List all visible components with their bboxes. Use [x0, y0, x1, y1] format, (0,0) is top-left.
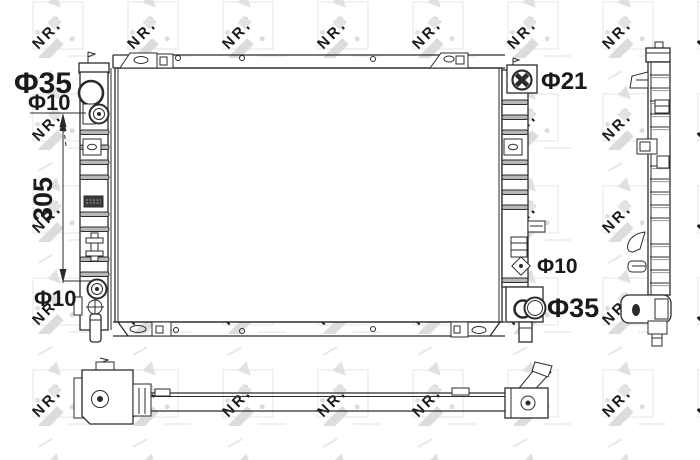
left-drain-tube	[90, 314, 101, 342]
dim-right-port: Φ35	[547, 293, 599, 323]
left-tank-label-block	[84, 196, 103, 207]
dim-right-fitting: Φ10	[537, 255, 578, 278]
dim-core-height: 305	[28, 177, 58, 222]
front-view	[74, 52, 546, 342]
dim-left-bottom-fitting: Φ10	[34, 286, 77, 311]
left-inlet-port	[79, 81, 103, 105]
radiator-core	[113, 53, 505, 337]
dim-filler-neck: Φ21	[541, 68, 587, 95]
drawing-svg: NRF	[0, 0, 700, 460]
right-tank-clamp	[511, 237, 527, 257]
right-drain-tube	[519, 322, 532, 342]
technical-drawing-radiator: NRF	[0, 0, 700, 460]
dim-left-top-fitting: Φ10	[28, 90, 71, 115]
left-tank	[74, 52, 111, 342]
left-tank-clamp	[91, 233, 98, 261]
